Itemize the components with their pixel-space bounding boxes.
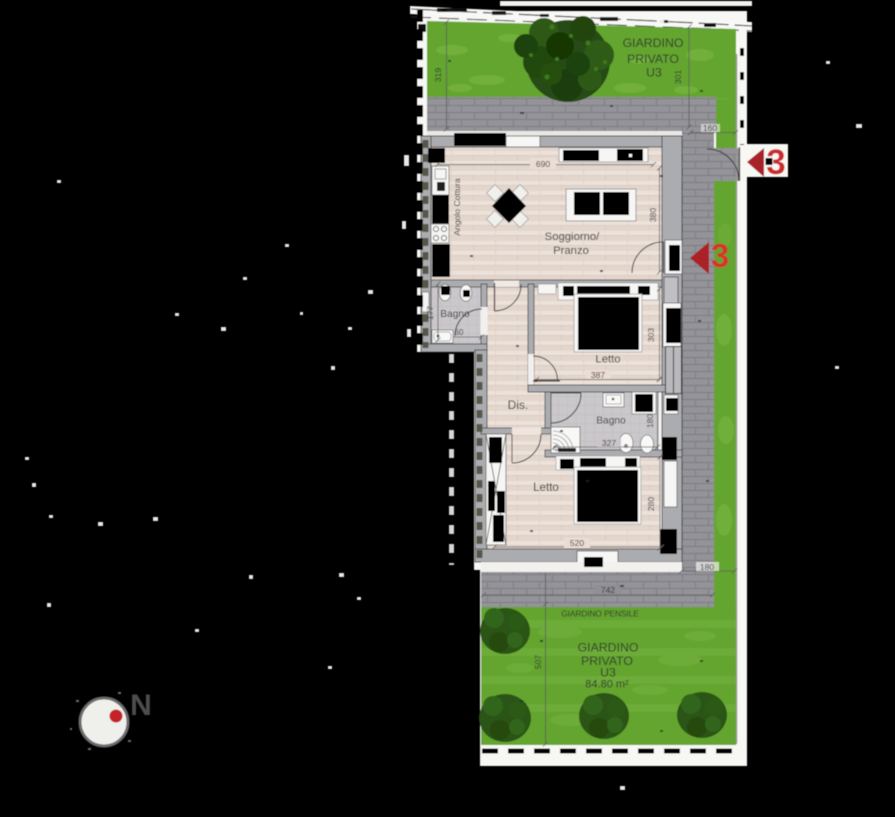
svg-text:Letto: Letto bbox=[595, 354, 620, 366]
svg-text:U3: U3 bbox=[600, 666, 616, 680]
svg-text:GIARDINO PENSILE: GIARDINO PENSILE bbox=[561, 609, 639, 619]
svg-text:GIARDINO: GIARDINO bbox=[623, 36, 684, 50]
svg-text:319: 319 bbox=[433, 68, 443, 82]
svg-text:520: 520 bbox=[570, 538, 584, 548]
svg-text:Soggiorno/: Soggiorno/ bbox=[545, 231, 601, 243]
svg-text:280: 280 bbox=[646, 497, 656, 511]
svg-text:327: 327 bbox=[602, 438, 616, 448]
svg-text:Bagno: Bagno bbox=[440, 309, 470, 320]
svg-text:84.80 m²: 84.80 m² bbox=[585, 679, 629, 691]
svg-text:177: 177 bbox=[425, 306, 435, 320]
svg-text:380: 380 bbox=[648, 208, 658, 222]
svg-text:Dis.: Dis. bbox=[508, 398, 529, 412]
svg-text:Angolo Cottura: Angolo Cottura bbox=[452, 178, 462, 236]
svg-text:160: 160 bbox=[703, 123, 717, 133]
svg-text:180: 180 bbox=[700, 562, 714, 572]
svg-text:3: 3 bbox=[766, 143, 785, 182]
svg-text:Bagno: Bagno bbox=[596, 416, 626, 427]
svg-text:301: 301 bbox=[673, 70, 683, 84]
svg-text:742: 742 bbox=[601, 585, 615, 595]
svg-text:507: 507 bbox=[533, 655, 543, 669]
svg-text:303: 303 bbox=[646, 328, 656, 342]
svg-text:Pranzo: Pranzo bbox=[553, 245, 589, 257]
svg-text:U3: U3 bbox=[646, 66, 662, 80]
svg-text:387: 387 bbox=[591, 370, 605, 380]
svg-text:N: N bbox=[130, 689, 152, 722]
svg-text:GIARDINO: GIARDINO bbox=[578, 641, 639, 655]
svg-text:PRIVATO: PRIVATO bbox=[627, 52, 679, 66]
svg-text:180: 180 bbox=[645, 414, 655, 428]
svg-text:3: 3 bbox=[711, 237, 729, 274]
svg-text:690: 690 bbox=[536, 159, 550, 169]
svg-text:Letto: Letto bbox=[533, 481, 559, 494]
svg-text:60: 60 bbox=[455, 328, 464, 337]
